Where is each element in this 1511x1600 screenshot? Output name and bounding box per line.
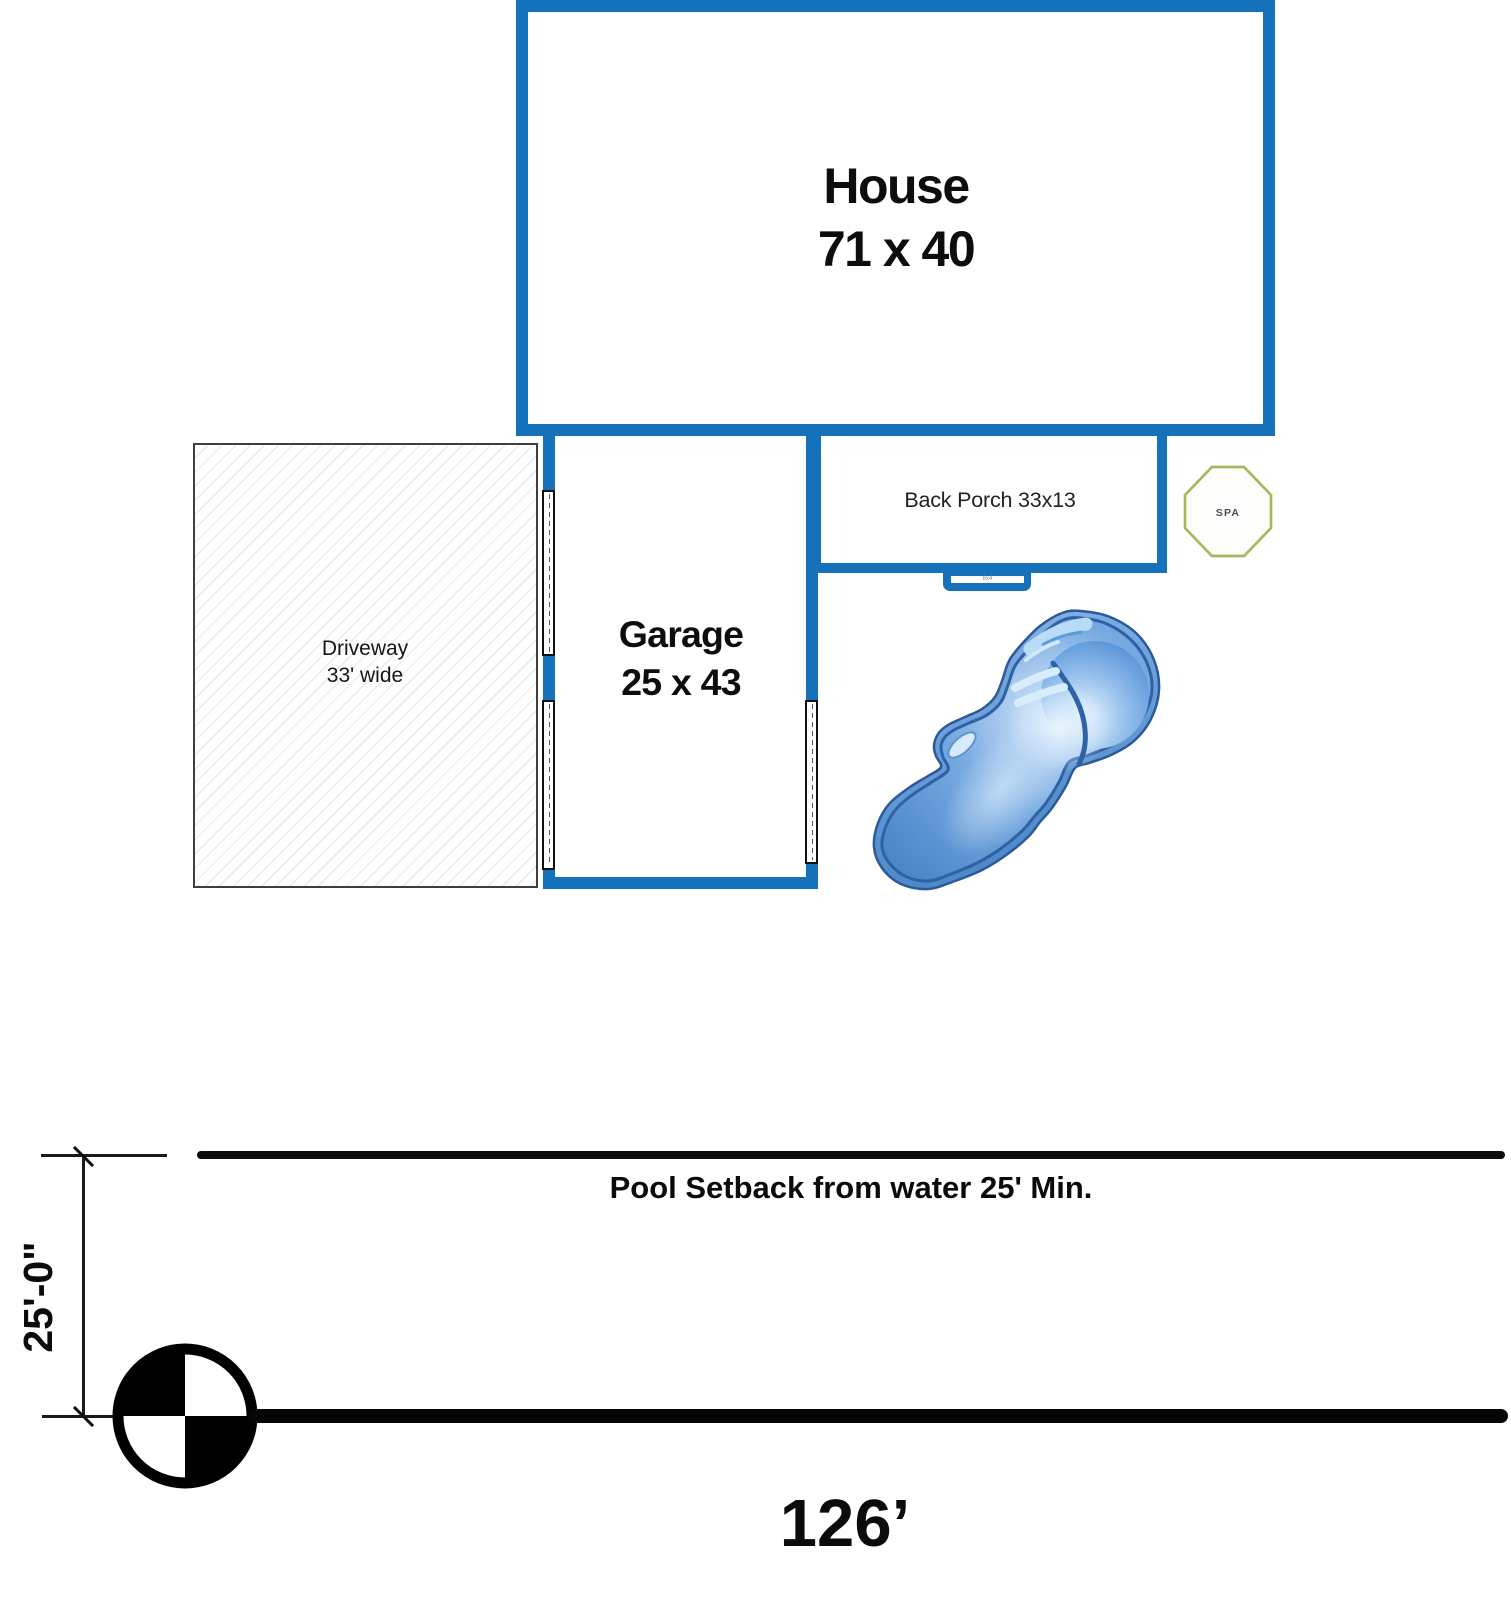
svg-text:SPA: SPA (1216, 507, 1240, 519)
